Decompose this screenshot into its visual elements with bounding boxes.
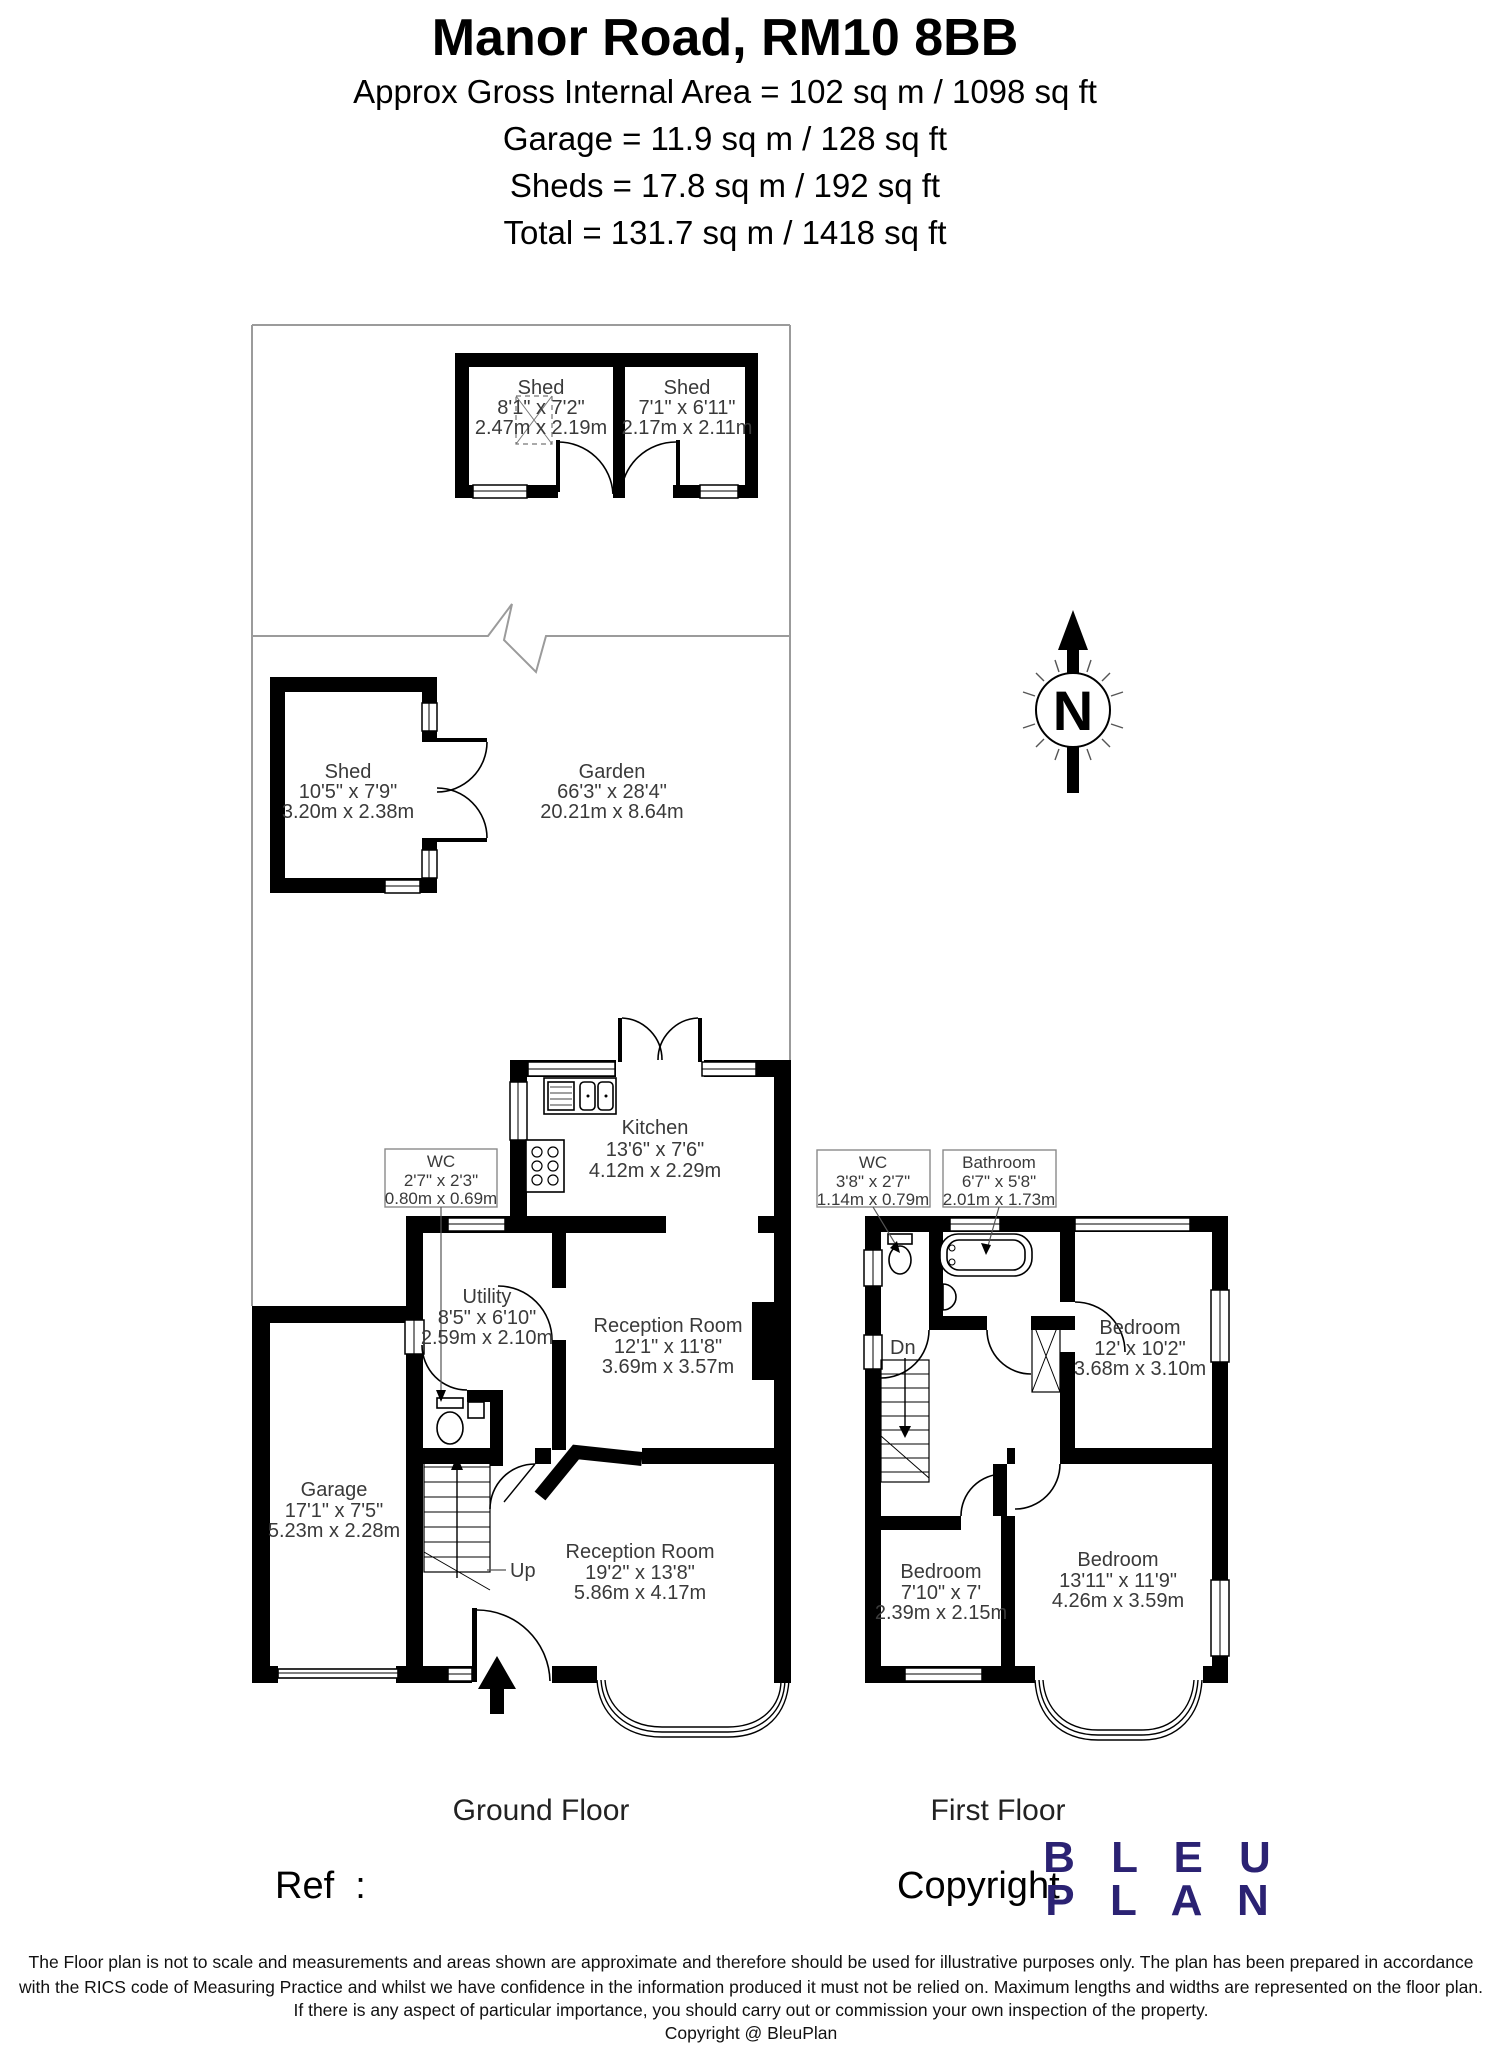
header-garage-line: Garage = 11.9 sq m / 128 sq ft	[503, 120, 947, 157]
cupboard	[1032, 1320, 1060, 1392]
room-size-metric: 1.14m x 0.79m	[817, 1190, 929, 1209]
room-label-reception2: Reception Room 19'2" x 13'8" 5.86m x 4.1…	[566, 1541, 715, 1604]
first-bay-window	[1035, 1680, 1202, 1740]
room-size-metric: 3.69m x 3.57m	[602, 1356, 734, 1378]
wc-ground-door-arc	[422, 1345, 467, 1390]
ref-label: Ref :	[275, 1865, 366, 1907]
disclaimer-line-4: Copyright @ BleuPlan	[665, 2023, 837, 2043]
room-name: Shed	[518, 377, 565, 399]
room-size-metric: 2.47m x 2.19m	[475, 417, 607, 439]
room-name: WC	[859, 1153, 887, 1172]
first-floor-plan: Dn WC 3'8" x 2'7" 1.14m x 0.79m Bat	[817, 1150, 1229, 1740]
room-label-garage: Garage 17'1" x 7'5" 5.23m x 2.28m	[268, 1479, 400, 1542]
kitchen-door-arc-right	[658, 1018, 698, 1060]
copyright-label: Copyright	[897, 1865, 1060, 1907]
page-title: Manor Road, RM10 8BB	[432, 9, 1019, 67]
room-size-imperial: 12'1" x 11'8"	[614, 1336, 722, 1358]
room-size-imperial: 13'6" x 7'6"	[606, 1139, 705, 1161]
room-name: Utility	[463, 1286, 512, 1308]
room-size-metric: 4.12m x 2.29m	[589, 1160, 721, 1182]
room-size-imperial: 8'5" x 6'10"	[438, 1307, 537, 1329]
room-size-imperial: 19'2" x 13'8"	[585, 1562, 695, 1584]
basin	[943, 1284, 956, 1310]
room-name: Bedroom	[1099, 1317, 1180, 1339]
room-size-metric: 2.39m x 2.15m	[875, 1602, 1007, 1624]
room-size-imperial: 13'11" x 11'9"	[1059, 1570, 1177, 1592]
room-label-bedroom2: Bedroom 7'10" x 7' 2.39m x 2.15m	[875, 1561, 1007, 1624]
room-size-metric: 2.59m x 2.10m	[421, 1327, 553, 1349]
room-size-metric: 20.21m x 8.64m	[540, 801, 683, 823]
room-name: WC	[427, 1152, 455, 1171]
room-size-metric: 2.17m x 2.11m	[622, 417, 753, 439]
bedroom3-door-arc	[1015, 1464, 1060, 1509]
logo-line1: B L E U	[1043, 1833, 1283, 1882]
disclaimer: The Floor plan is not to scale and measu…	[18, 1952, 1483, 2043]
room-size-imperial: 66'3" x 28'4"	[557, 781, 667, 803]
shed-top-left: Shed 8'1" x 7'2" 2.47m x 2.19m Shed 7'1"…	[455, 353, 758, 498]
room-label-garden: Garden 66'3" x 28'4" 20.21m x 8.64m	[540, 761, 683, 823]
room-label-reception1: Reception Room 12'1" x 11'8" 3.69m x 3.5…	[594, 1315, 743, 1378]
header-area-line: Approx Gross Internal Area = 102 sq m / …	[353, 73, 1097, 110]
room-name: Bedroom	[1077, 1549, 1158, 1571]
kitchen-sink	[544, 1078, 616, 1114]
footer: Ref : Copyright B L E U P L A N	[275, 1833, 1283, 1925]
room-name: Garage	[301, 1479, 368, 1501]
logo-line2: P L A N	[1045, 1876, 1281, 1925]
disclaimer-line-2: with the RICS code of Measuring Practice…	[18, 1977, 1483, 1997]
room-name: Reception Room	[594, 1315, 743, 1337]
room-label-shed-top-right: Shed 7'1" x 6'11" 2.17m x 2.11m	[622, 377, 753, 439]
ground-floor-plan: Up WC 2'7" x 2'3"	[252, 1018, 791, 1737]
room-label-kitchen: Kitchen 13'6" x 7'6" 4.12m x 2.29m	[589, 1117, 721, 1182]
reception-door-arc	[490, 1464, 535, 1509]
flue-mark	[540, 1452, 642, 1496]
ground-floor-caption: Ground Floor	[453, 1794, 630, 1827]
toilet-ground	[437, 1398, 484, 1444]
room-size-imperial: 7'10" x 7'	[901, 1582, 981, 1604]
room-size-metric: 5.86m x 4.17m	[574, 1582, 706, 1604]
header: Manor Road, RM10 8BB Approx Gross Intern…	[353, 9, 1097, 251]
stairs-down: Dn	[881, 1337, 929, 1482]
ground-bay-window	[597, 1680, 789, 1737]
room-size-metric: 2.01m x 1.73m	[943, 1190, 1055, 1209]
bathroom-door-arc	[987, 1330, 1031, 1374]
garden-shed-door-arc-top	[437, 742, 487, 792]
floor-captions: Ground Floor First Floor	[453, 1794, 1066, 1827]
room-label-bedroom3: Bedroom 13'11" x 11'9" 4.26m x 3.59m	[1052, 1549, 1184, 1612]
garden-shed-door-arc-bottom	[437, 788, 487, 838]
room-size-metric: 4.26m x 3.59m	[1052, 1590, 1184, 1612]
room-name: Kitchen	[622, 1117, 689, 1139]
toilet-first	[888, 1234, 912, 1274]
room-size-metric: 3.20m x 2.38m	[282, 801, 414, 823]
room-name: Shed	[325, 761, 372, 783]
shed1-door-arc	[558, 442, 613, 494]
garden-shed: Shed 10'5" x 7'9" 3.20m x 2.38m	[270, 677, 487, 893]
room-size-imperial: 2'7" x 2'3"	[404, 1171, 478, 1190]
room-label-bedroom1: Bedroom 12' x 10'2" 3.68m x 3.10m	[1074, 1317, 1206, 1380]
floorplan-svg: Manor Road, RM10 8BB Approx Gross Intern…	[0, 0, 1502, 2048]
stairs-up-label: Up	[510, 1560, 536, 1582]
room-size-imperial: 7'1" x 6'11"	[638, 397, 735, 419]
bleuplan-logo: B L E U P L A N	[1043, 1833, 1283, 1925]
room-size-metric: 3.68m x 3.10m	[1074, 1358, 1206, 1380]
kitchen-hob	[526, 1140, 564, 1192]
room-size-imperial: 3'8" x 2'7"	[836, 1172, 910, 1191]
room-name: Garden	[579, 761, 646, 783]
kitchen-door-arc-left	[622, 1018, 662, 1060]
room-size-imperial: 17'1" x 7'5"	[285, 1500, 384, 1522]
north-arrowhead	[1058, 610, 1088, 650]
room-name: Shed	[664, 377, 711, 399]
room-name: Reception Room	[566, 1541, 715, 1563]
header-total-line: Total = 131.7 sq m / 1418 sq ft	[503, 214, 946, 251]
chimney-breast	[752, 1302, 774, 1380]
room-size-metric: 5.23m x 2.28m	[268, 1520, 400, 1542]
boundary-break-line	[252, 604, 790, 672]
room-size-imperial: 8'1" x 7'2"	[497, 397, 584, 419]
room-name: Bathroom	[962, 1153, 1036, 1172]
header-sheds-line: Sheds = 17.8 sq m / 192 sq ft	[510, 167, 940, 204]
room-size-metric: 0.80m x 0.69m	[385, 1189, 497, 1208]
first-floor-caption: First Floor	[931, 1794, 1066, 1827]
disclaimer-line-1: The Floor plan is not to scale and measu…	[29, 1952, 1474, 1972]
floorplan-page: Manor Road, RM10 8BB Approx Gross Intern…	[0, 0, 1502, 2048]
compass-north-label: N	[1053, 679, 1093, 742]
stairs-down-label: Dn	[890, 1337, 916, 1359]
wc-ground-label-box: WC 2'7" x 2'3" 0.80m x 0.69m	[385, 1149, 497, 1402]
room-size-imperial: 12' x 10'2"	[1094, 1338, 1185, 1360]
compass-icon: N	[1023, 610, 1123, 793]
room-label-shed-top-left: Shed 8'1" x 7'2" 2.47m x 2.19m	[475, 377, 607, 439]
disclaimer-line-3: If there is any aspect of particular imp…	[294, 2000, 1209, 2020]
stairs-up: Up	[424, 1452, 536, 1590]
room-size-imperial: 6'7" x 5'8"	[962, 1172, 1036, 1191]
room-size-imperial: 10'5" x 7'9"	[299, 781, 398, 803]
room-name: Bedroom	[900, 1561, 981, 1583]
shed2-door-arc	[621, 442, 676, 494]
room-label-garden-shed: Shed 10'5" x 7'9" 3.20m x 2.38m	[282, 761, 414, 823]
